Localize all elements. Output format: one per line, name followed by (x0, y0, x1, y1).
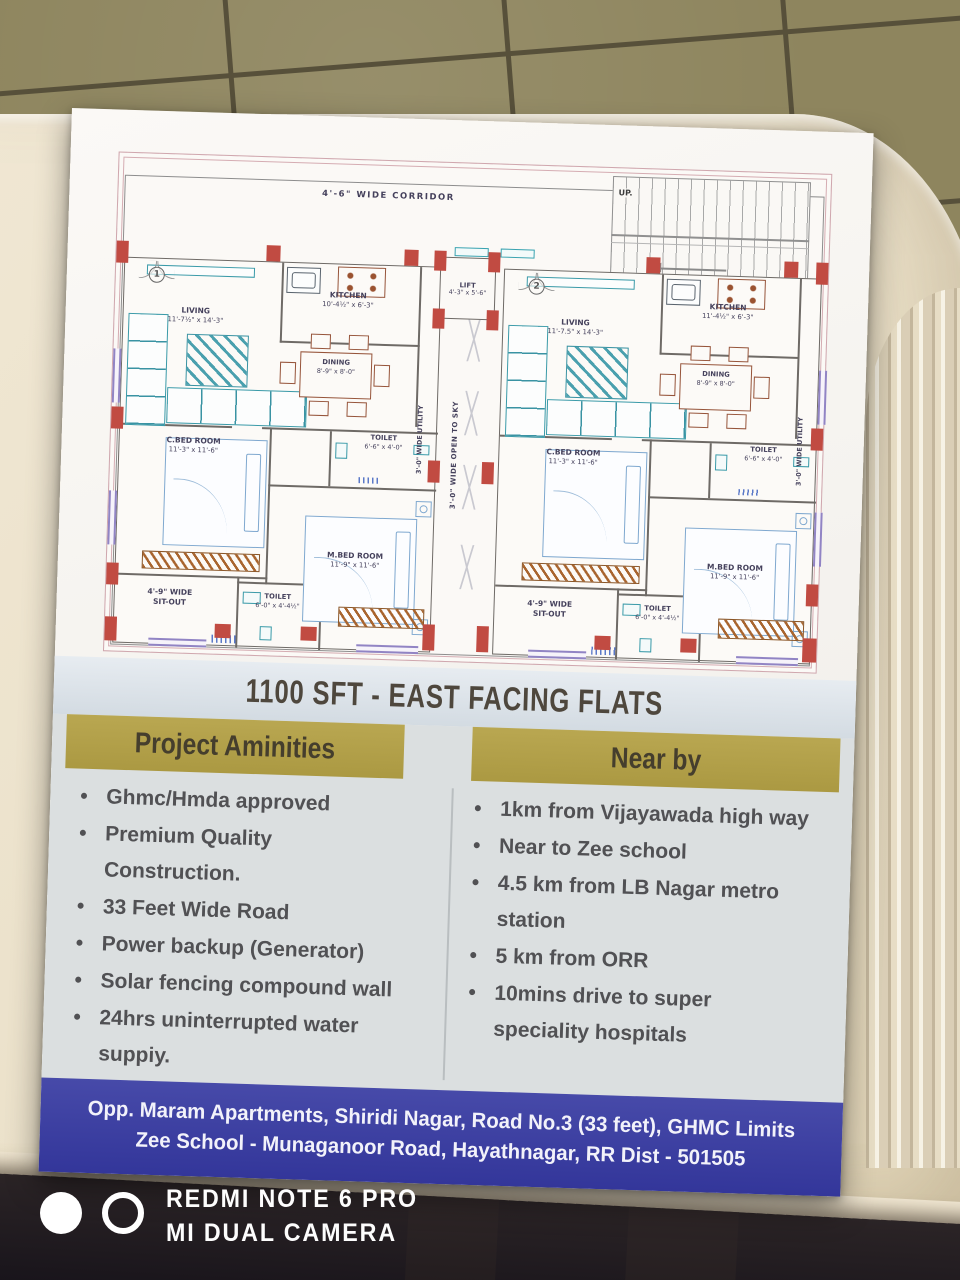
sofa (166, 387, 307, 427)
column-block (486, 310, 499, 330)
flyer: 4'-6" WIDE CORRIDOR UP. LIFT 4'-3" x 5'-… (39, 108, 874, 1197)
toilet-label: TOILET 6'-0" x 4'-4½" (608, 603, 706, 623)
column-block (680, 638, 696, 652)
window (455, 247, 489, 257)
lift-dimension: 4'-3" x 5'-6" (449, 288, 487, 296)
flat-2: 2 LIVING 11'-7.5" x 14'-3" KITCHEN 11'-4… (492, 269, 822, 665)
flat-number-badge: 1 (149, 266, 165, 282)
window (736, 656, 798, 666)
chair (311, 334, 331, 350)
rug (565, 346, 629, 400)
list-item: 10mins drive to superspeciality hospital… (463, 975, 835, 1059)
chair (308, 401, 328, 417)
utility-label: 3'-0" WIDE UTILITY (413, 363, 434, 517)
column-block (266, 245, 280, 261)
sofa (546, 399, 687, 439)
floor-plan: 4'-6" WIDE CORRIDOR UP. LIFT 4'-3" x 5'-… (103, 151, 832, 673)
window (501, 249, 535, 259)
column-block (104, 616, 117, 640)
dining-label: DINING 8'-9" x 8'-0" (682, 369, 751, 388)
floor-trap (738, 489, 760, 496)
wardrobe (718, 619, 805, 642)
amenities-list: Ghmc/Hmda approved Premium QualityConstr… (68, 778, 449, 1084)
column-block (116, 240, 129, 262)
column-block (300, 626, 316, 640)
flat-1: 1 LIVING 11'-7½" x 14'-3" KITCHEN 10'-4½… (112, 257, 442, 653)
sofa (505, 325, 548, 438)
info-panel: Project Aminities Near by Ghmc/Hmda appr… (42, 714, 855, 1103)
wardrobe (338, 607, 425, 630)
column-block (106, 562, 119, 584)
rug (185, 334, 249, 388)
sitout-label: 4'-9" WIDE SIT-OUT (122, 586, 217, 608)
column-block (476, 626, 489, 652)
photo-scene: 4'-6" WIDE CORRIDOR UP. LIFT 4'-3" x 5'-… (0, 0, 960, 1280)
chair (373, 365, 390, 387)
kitchen-label: KITCHEN 10'-4½" x 6'-3" (282, 289, 415, 312)
chair (279, 362, 296, 384)
sofa (125, 313, 168, 426)
open-to-sky-hatch: ╳ (439, 543, 495, 602)
window (817, 371, 827, 425)
window (148, 638, 206, 648)
column-block (594, 636, 610, 650)
living-room-label: LIVING 11'-7½" x 14'-3" (139, 304, 252, 326)
children-bedroom-label: C.BED ROOM 11'-3" x 11'-6" (507, 446, 640, 469)
flat-number-badge: 2 (528, 278, 544, 294)
column-block (432, 308, 445, 328)
column-block (802, 638, 817, 662)
nearby-header: Near by (471, 727, 841, 793)
column-block (816, 262, 829, 284)
nearby-list: 1km from Vijayawada high way Near to Zee… (463, 791, 841, 1059)
wall (115, 573, 267, 580)
chair (659, 374, 676, 396)
column-block (784, 261, 798, 277)
amenities-header: Project Aminities (65, 714, 405, 779)
list-item: 24hrs uninterrupted watersuppiy. (68, 999, 442, 1083)
floor-trap (358, 477, 380, 484)
chair (753, 377, 770, 399)
window (112, 348, 122, 402)
camera-watermark: REDMI NOTE 6 PRO MI DUAL CAMERA (0, 1180, 700, 1280)
column-block (422, 624, 435, 650)
column-block (111, 406, 124, 428)
stairs-up-label: UP. (616, 188, 634, 198)
wardrobe (521, 562, 640, 584)
sitout-label: 4'-9" WIDE SIT-OUT (502, 598, 597, 620)
kitchen-label: KITCHEN 11'-4½" x 6'-3" (662, 301, 795, 324)
chair (726, 414, 746, 430)
toilet-label: TOILET 6'-0" x 4'-4½" (228, 591, 326, 611)
wall (328, 431, 332, 486)
column-block (214, 624, 230, 638)
dining-label: DINING 8'-9" x 8'-0" (302, 357, 371, 376)
wall (495, 585, 647, 592)
wall (708, 443, 712, 498)
wall (268, 484, 436, 491)
stool-slats (866, 288, 960, 1168)
chair (690, 346, 710, 362)
column-block (404, 250, 418, 266)
window (813, 513, 823, 567)
column-block (481, 462, 494, 484)
column-block (434, 250, 447, 270)
camera-dot-filled-icon (40, 1192, 82, 1234)
list-item: 4.5 km from LB Nagar metrostation (466, 865, 838, 949)
flyer-title: 1100 SFT - EAST FACING FLATS (245, 672, 664, 723)
window (107, 490, 117, 544)
camera-dot-ring-icon (102, 1192, 144, 1234)
open-to-sky-hatch: ╳ (444, 389, 500, 448)
children-bedroom-label: C.BED ROOM 11'-3" x 11'-6" (127, 434, 260, 457)
column-block (646, 257, 660, 273)
chair (349, 335, 369, 351)
chair (728, 347, 748, 363)
wall (648, 496, 816, 503)
camera-watermark-text: REDMI NOTE 6 PRO MI DUAL CAMERA (166, 1182, 418, 1250)
column-block (806, 584, 819, 606)
toilet-fixture (639, 638, 651, 652)
chair (688, 413, 708, 429)
living-room-label: LIVING 11'-7.5" x 14'-3" (519, 316, 632, 338)
chair (346, 402, 366, 418)
column-block (488, 252, 501, 272)
window (528, 650, 586, 660)
utility-label: 3'-0" WIDE UTILITY (793, 375, 814, 529)
window (356, 644, 418, 654)
list-item: Premium QualityConstruction. (74, 815, 448, 899)
wardrobe (142, 550, 261, 572)
toilet-fixture (259, 626, 271, 640)
